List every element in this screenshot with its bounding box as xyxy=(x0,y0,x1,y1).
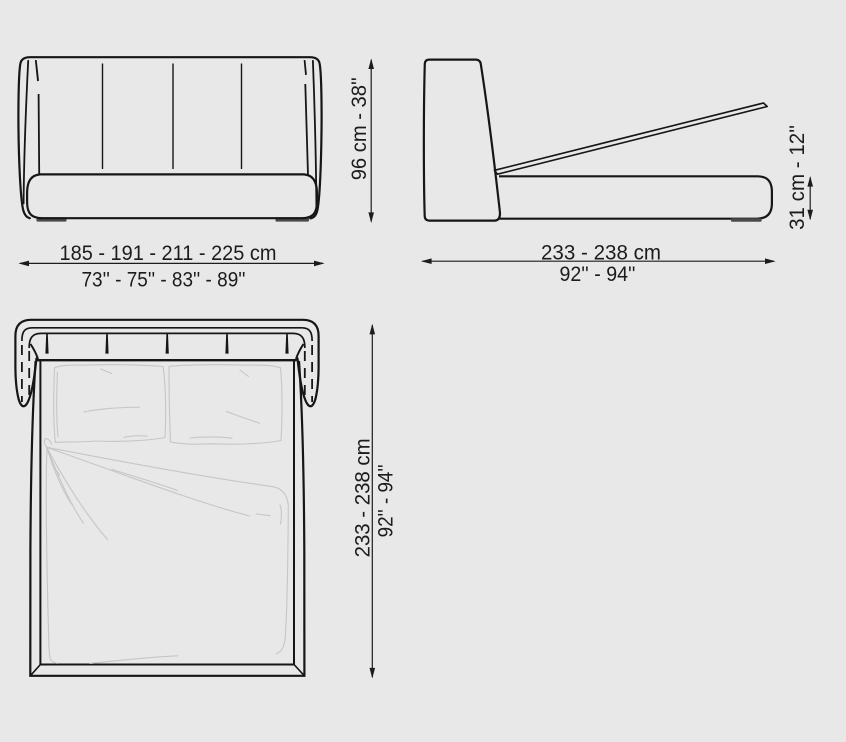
svg-text:92'' - 94'': 92'' - 94'' xyxy=(560,262,636,286)
svg-text:185 - 191 - 211 - 225 cm: 185 - 191 - 211 - 225 cm xyxy=(60,241,277,265)
svg-text:31 cm - 12'': 31 cm - 12'' xyxy=(785,125,809,230)
svg-text:73'' - 75'' - 83'' - 89'': 73'' - 75'' - 83'' - 89'' xyxy=(82,268,246,292)
svg-text:233 - 238 cm: 233 - 238 cm xyxy=(351,438,375,557)
svg-text:233 - 238 cm: 233 - 238 cm xyxy=(541,240,661,264)
svg-text:96 cm - 38'': 96 cm - 38'' xyxy=(347,77,371,180)
svg-text:92'' - 94'': 92'' - 94'' xyxy=(374,464,398,537)
